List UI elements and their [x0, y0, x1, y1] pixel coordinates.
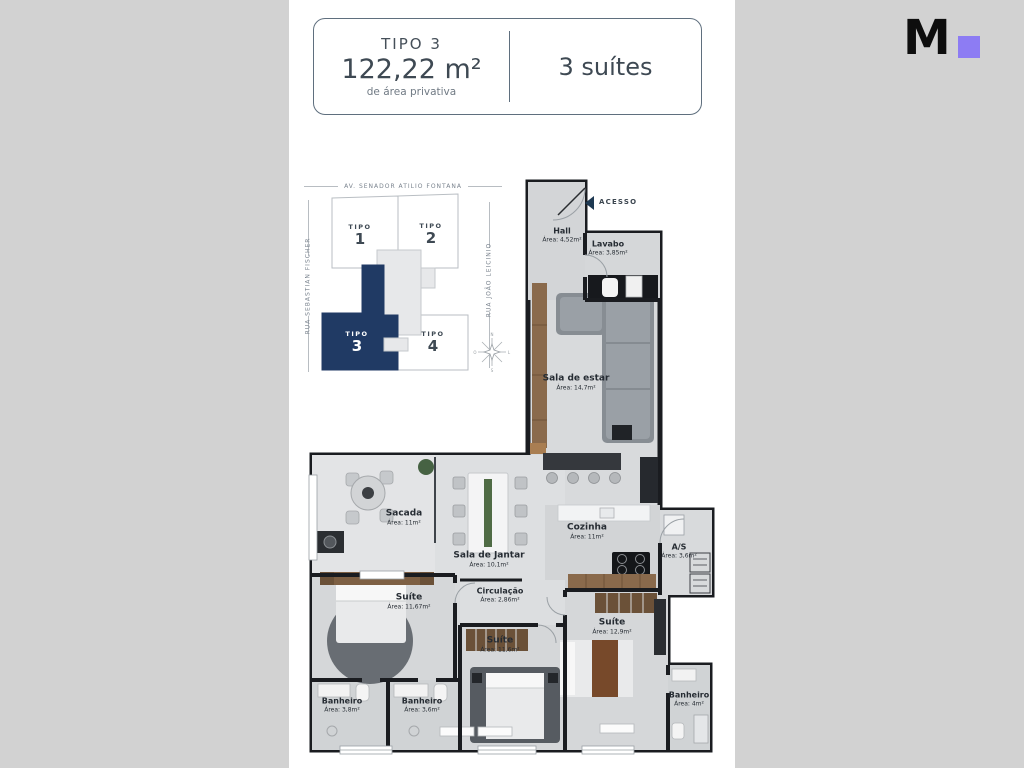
cooktop	[612, 552, 650, 577]
unit-type-label: TIPO 3	[381, 35, 442, 53]
unit-spec-left: TIPO 3 122,22 m² de área privativa	[314, 31, 510, 102]
room-label-banheiro-1: Banheiro Área: 3,8m²	[322, 696, 363, 714]
room-label-suite-left: Suíte Área: 11,67m²	[387, 593, 430, 612]
room-label-lavabo: Lavabo Área: 3,85m²	[588, 239, 627, 257]
coffee-table	[612, 425, 632, 440]
room-label-as: A/S Área: 3,6m²	[661, 542, 697, 560]
unit-area-caption: de área privativa	[367, 86, 456, 98]
lavabo-fixtures	[588, 275, 658, 298]
floor-plan: ACESSO Hall Área: 4,52m² Lavabo Área: 3,…	[300, 175, 715, 765]
logo-letter: M	[903, 16, 949, 60]
unit-spec-box: TIPO 3 122,22 m² de área privativa 3 suí…	[313, 18, 702, 115]
hall-mat	[530, 443, 546, 454]
room-label-sala-jantar: Sala de Jantar Área: 10,1m²	[453, 551, 524, 570]
room-label-circulacao: Circulação Área: 2,86m²	[477, 586, 524, 604]
grill	[316, 531, 344, 553]
tv-sideboard	[532, 283, 547, 448]
unit-area-value: 122,22 m²	[341, 54, 481, 85]
brand-logo: M	[903, 16, 980, 60]
room-label-suite-middle: Suíte Área: 11,6m²	[480, 636, 519, 655]
kitchen-cabinets	[568, 574, 656, 589]
unit-suites-label: 3 suítes	[510, 19, 701, 114]
room-label-suite-right: Suíte Área: 12,9m²	[592, 618, 631, 637]
floor-plan-drawing	[300, 175, 715, 765]
flyer-canvas: TIPO 3 122,22 m² de área privativa 3 suí…	[0, 0, 1024, 768]
dining-table	[453, 473, 527, 553]
fridge	[640, 457, 658, 503]
room-label-hall: Hall Área: 4,52m²	[542, 226, 581, 244]
access-label-group: ACESSO	[599, 198, 637, 206]
room-label-cozinha: Cozinha Área: 11m²	[567, 523, 607, 542]
plant	[418, 459, 434, 475]
purple-square-icon	[958, 36, 980, 58]
kitchen-counter	[558, 505, 650, 521]
room-label-banheiro-2: Banheiro Área: 3,6m²	[402, 696, 443, 714]
access-label: ACESSO	[599, 198, 637, 206]
room-label-sacada: Sacada Área: 11m²	[386, 509, 422, 528]
room-label-sala-estar: Sala de estar Área: 14,7m²	[543, 374, 610, 393]
room-label-banheiro-3: Banheiro Área: 4m²	[669, 690, 710, 708]
